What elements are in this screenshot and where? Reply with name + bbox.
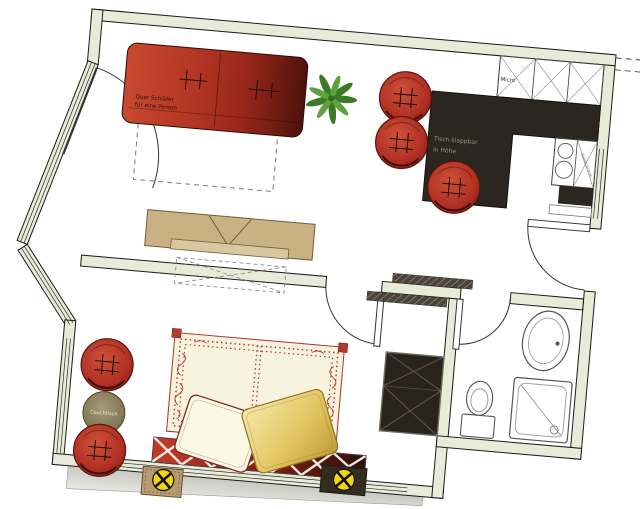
floor-plan: Micro Tisch klappbar in Höhe Kühlschrank… xyxy=(0,0,640,509)
floor-plan-scan: Micro Tisch klappbar in Höhe Kühlschrank… xyxy=(0,0,640,509)
dark-counter-stub xyxy=(558,185,593,206)
wardrobe xyxy=(379,352,444,436)
shower xyxy=(509,377,572,443)
bed-post xyxy=(338,343,348,353)
bed-post xyxy=(172,328,182,338)
